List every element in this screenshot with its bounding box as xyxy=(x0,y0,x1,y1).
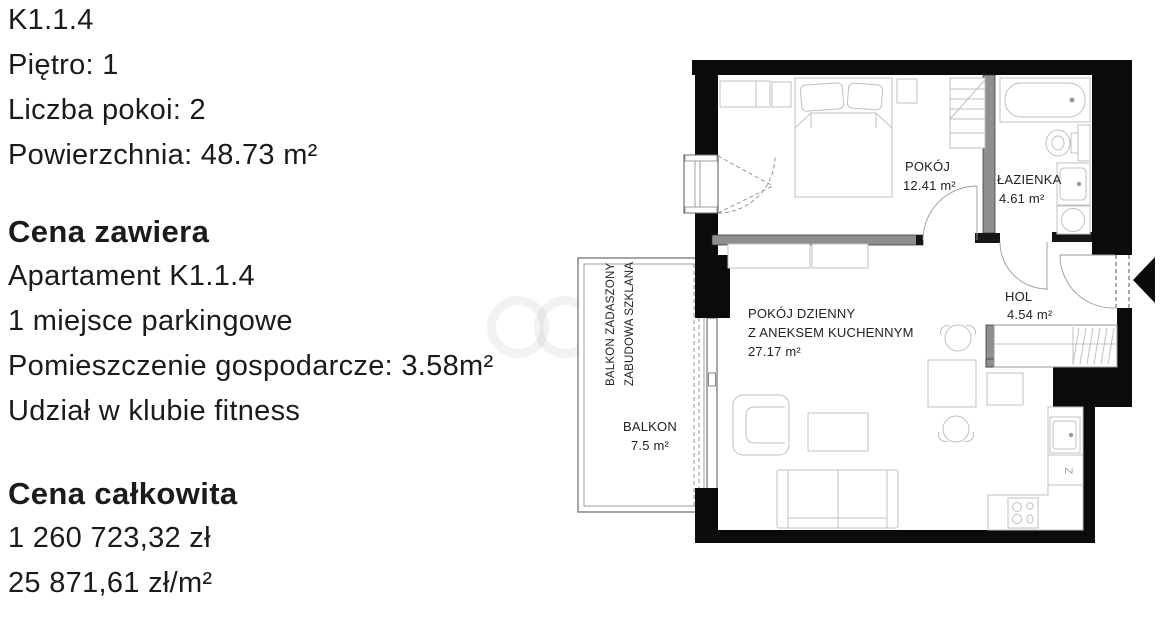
include-item: 1 miejsce parkingowe xyxy=(8,299,493,344)
entrance-door xyxy=(1060,255,1155,308)
hall-area: 4.54 m² xyxy=(1007,307,1053,322)
toilet xyxy=(1046,130,1078,156)
dishwasher-mark: Z xyxy=(1062,468,1074,475)
kitchen-cabinet xyxy=(987,373,1023,405)
bathroom-fixtures xyxy=(1000,78,1090,234)
unit-id: K1.1.4 xyxy=(8,0,318,43)
bathroom-shelf xyxy=(1078,125,1090,161)
dining-chair xyxy=(941,325,976,351)
include-item: Udział w klubie fitness xyxy=(8,389,493,434)
entrance-arrow-icon xyxy=(1133,257,1155,303)
bed xyxy=(795,78,892,197)
bedroom-window xyxy=(684,155,775,213)
unit-details: K1.1.4 Piętro: 1 Liczba pokoi: 2 Powierz… xyxy=(8,0,318,178)
price-per-m2: 25 871,61 zł/m² xyxy=(8,561,238,606)
kitchen-sink xyxy=(1050,417,1080,453)
balcony-note-line1: BALKON ZADASZONY xyxy=(605,263,617,386)
floor-line: Piętro: 1 xyxy=(8,43,318,88)
stove xyxy=(1008,498,1038,528)
coffee-table xyxy=(808,413,868,451)
balcony-note-line2: ZABUDOWA SZKLANA xyxy=(624,262,636,386)
dining-chair xyxy=(939,416,974,442)
total-price-section: Cena całkowita 1 260 723,32 zł 25 871,61… xyxy=(8,471,238,606)
bedroom-area: 12.41 m² xyxy=(903,178,956,193)
washing-machine xyxy=(1057,206,1090,234)
sofa xyxy=(777,470,898,528)
bathroom-label: ŁAZIENKA xyxy=(997,172,1062,187)
price-includes-heading: Cena zawiera xyxy=(8,209,493,254)
floor-plan: BALKON ZADASZONY ZABUDOWA SZKLANA BALKON… xyxy=(573,55,1168,634)
balcony-label: BALKON xyxy=(623,419,677,434)
bathroom-sink xyxy=(1057,163,1090,205)
armchair xyxy=(733,395,789,455)
hall-label: HOL xyxy=(1005,289,1032,304)
total-price-heading: Cena całkowita xyxy=(8,471,238,516)
bedroom-door xyxy=(923,186,977,240)
include-item: Apartament K1.1.4 xyxy=(8,254,493,299)
listing-page: K1.1.4 Piętro: 1 Liczba pokoi: 2 Powierz… xyxy=(0,0,1168,634)
living-room-label: POKÓJ DZIENNY xyxy=(748,306,855,321)
include-item: Pomieszczenie gospodarcze: 3.58m² xyxy=(8,344,493,389)
balcony-area: 7.5 m² xyxy=(631,438,670,453)
nightstand xyxy=(897,79,917,103)
rooms-line: Liczba pokoi: 2 xyxy=(8,88,318,133)
dresser xyxy=(720,81,770,107)
bathroom-area: 4.61 m² xyxy=(999,191,1045,206)
living-room-area: 27.17 m² xyxy=(748,344,801,359)
area-line: Powierzchnia: 48.73 m² xyxy=(8,133,318,178)
bedroom-label: POKÓJ xyxy=(905,159,950,174)
tv-console xyxy=(728,244,810,268)
living-room-label-line2: Z ANEKSEM KUCHENNYM xyxy=(748,325,914,340)
total-price-value: 1 260 723,32 zł xyxy=(8,516,238,561)
balcony-sliding-door xyxy=(707,318,717,492)
bathtub xyxy=(1000,78,1090,122)
nightstand xyxy=(772,82,791,107)
price-includes-section: Cena zawiera Apartament K1.1.4 1 miejsce… xyxy=(8,209,493,434)
bathroom-door xyxy=(1000,242,1047,290)
sideboard xyxy=(812,244,868,268)
dining-table xyxy=(928,360,976,407)
bedroom-wardrobe xyxy=(950,78,985,148)
hall-wardrobe xyxy=(994,325,1117,367)
living-room-furniture xyxy=(728,244,976,528)
